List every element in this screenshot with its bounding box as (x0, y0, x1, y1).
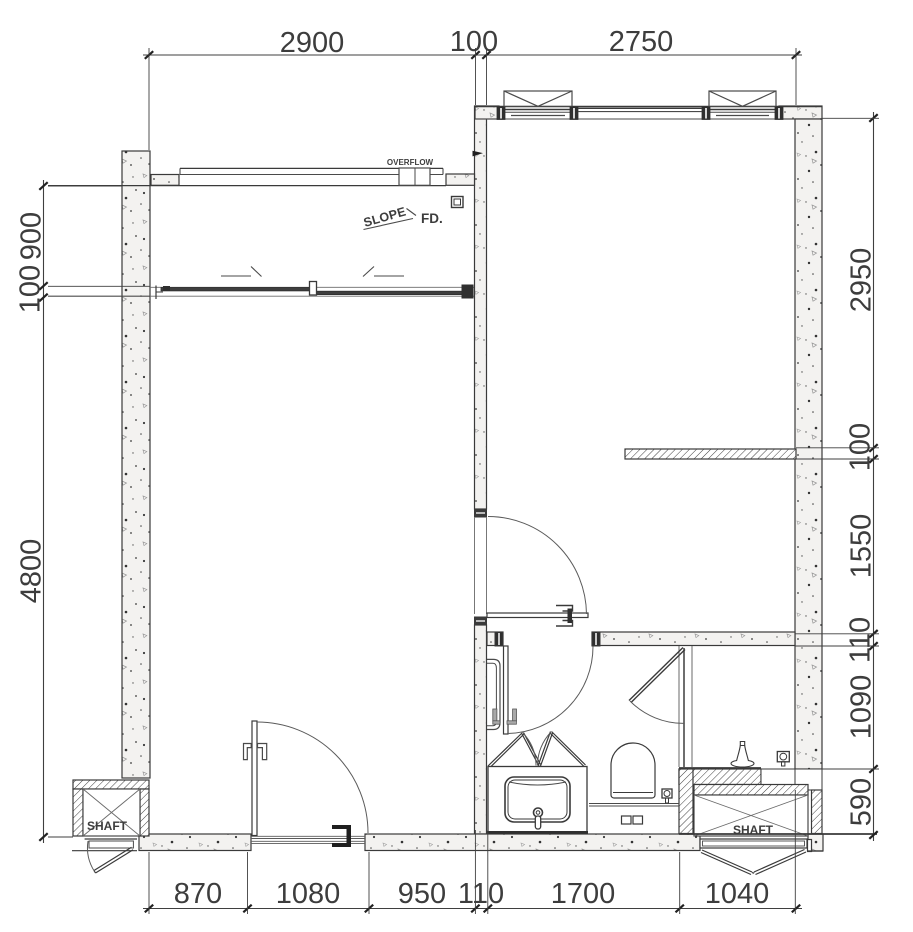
svg-text:SHAFT: SHAFT (733, 823, 774, 837)
svg-text:110: 110 (458, 878, 504, 910)
svg-text:2750: 2750 (609, 26, 674, 58)
svg-text:1090: 1090 (846, 675, 878, 740)
svg-text:4800: 4800 (16, 539, 48, 604)
svg-text:FD.: FD. (421, 211, 443, 226)
svg-text:100: 100 (15, 265, 47, 313)
svg-text:590: 590 (846, 778, 878, 826)
svg-text:950: 950 (398, 878, 446, 910)
svg-text:SHAFT: SHAFT (87, 819, 128, 833)
svg-text:900: 900 (16, 212, 48, 260)
svg-text:1080: 1080 (276, 878, 341, 910)
svg-text:OVERFLOW: OVERFLOW (387, 158, 434, 167)
svg-text:110: 110 (845, 617, 877, 663)
svg-text:2950: 2950 (846, 248, 878, 313)
svg-text:2900: 2900 (280, 27, 345, 59)
svg-text:1550: 1550 (846, 514, 878, 579)
svg-text:100: 100 (450, 26, 498, 58)
svg-text:1700: 1700 (551, 878, 616, 910)
svg-text:870: 870 (174, 878, 222, 910)
svg-text:100: 100 (845, 423, 877, 471)
svg-text:1040: 1040 (705, 878, 770, 910)
